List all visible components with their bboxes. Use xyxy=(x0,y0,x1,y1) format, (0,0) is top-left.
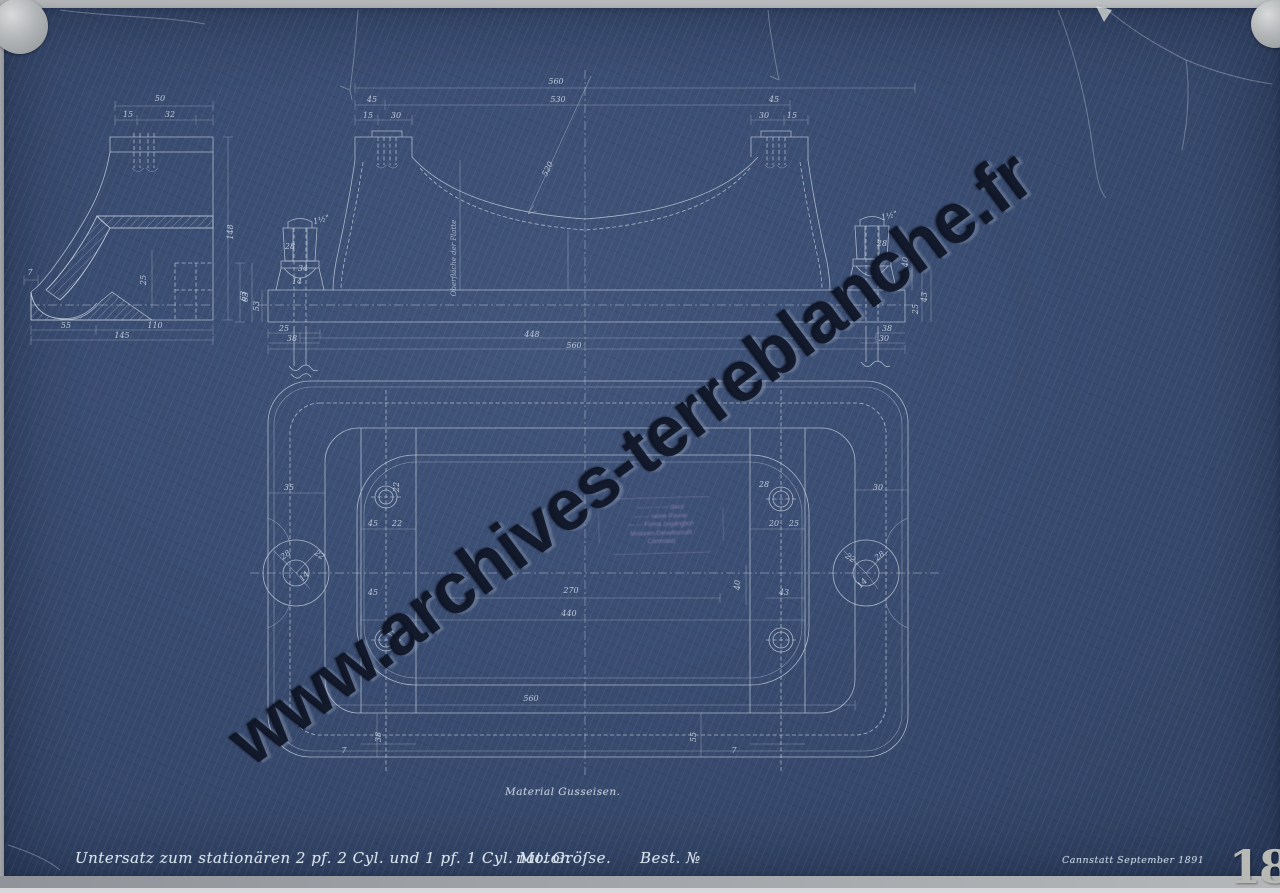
blueprint-photo: Oberfläche der Platte 501532148632575511… xyxy=(0,0,1280,893)
svg-text:30: 30 xyxy=(873,483,883,492)
plan-view xyxy=(250,381,940,772)
material-caption: Material Gusseisen. xyxy=(505,786,620,798)
svg-text:1½": 1½" xyxy=(312,213,330,226)
dimension-labels: 5015321486325755110145560530454515303015… xyxy=(27,77,929,755)
svg-text:22: 22 xyxy=(392,482,401,493)
svg-text:25: 25 xyxy=(788,519,799,528)
svg-text:40: 40 xyxy=(733,580,742,591)
svg-text:560: 560 xyxy=(566,341,581,350)
page-number: 18 xyxy=(1229,840,1280,893)
svg-text:55: 55 xyxy=(61,321,71,330)
svg-text:38: 38 xyxy=(882,324,892,333)
order-number-caption: Best. № xyxy=(640,849,701,867)
svg-text:40: 40 xyxy=(901,257,910,268)
svg-text:15: 15 xyxy=(123,110,133,119)
svg-text:22: 22 xyxy=(391,519,402,528)
svg-text:1½": 1½" xyxy=(880,209,898,222)
svg-text:15: 15 xyxy=(787,111,797,120)
svg-text:30: 30 xyxy=(391,111,401,120)
svg-text:560: 560 xyxy=(548,77,563,86)
svg-text:43: 43 xyxy=(778,588,789,597)
svg-text:45: 45 xyxy=(367,588,378,597)
svg-text:270: 270 xyxy=(562,586,578,595)
svg-text:22: 22 xyxy=(312,548,326,562)
svg-text:63: 63 xyxy=(241,292,250,302)
svg-text:45: 45 xyxy=(366,95,377,104)
svg-text:32: 32 xyxy=(165,110,175,119)
svg-text:20: 20 xyxy=(768,519,779,528)
svg-text:14: 14 xyxy=(292,277,302,286)
svg-text:28: 28 xyxy=(872,549,886,563)
svg-text:34: 34 xyxy=(298,264,308,273)
svg-text:38: 38 xyxy=(374,732,383,742)
svg-text:15: 15 xyxy=(363,111,373,120)
svg-text:35: 35 xyxy=(284,483,294,492)
svg-text:28: 28 xyxy=(284,242,295,251)
svg-text:38: 38 xyxy=(287,334,297,343)
svg-text:45: 45 xyxy=(367,519,378,528)
axis-note: Oberfläche der Platte xyxy=(450,220,458,296)
svg-text:30: 30 xyxy=(879,334,889,343)
stamp-text: — — — — dass— — seine Pause— — Firma zug… xyxy=(598,503,723,548)
drawing-linework: Oberfläche der Platte 501532148632575511… xyxy=(0,0,1280,893)
svg-text:55: 55 xyxy=(689,732,698,742)
svg-text:43: 43 xyxy=(920,292,929,303)
svg-text:28: 28 xyxy=(758,480,769,489)
svg-text:25: 25 xyxy=(139,275,148,286)
svg-text:448: 448 xyxy=(523,330,539,339)
title-caption: Untersatz zum stationären 2 pf. 2 Cyl. u… xyxy=(75,849,571,867)
svg-text:25: 25 xyxy=(911,304,920,315)
svg-text:530: 530 xyxy=(550,95,565,104)
svg-text:25: 25 xyxy=(278,324,289,333)
svg-text:520: 520 xyxy=(540,160,555,178)
svg-text:145: 145 xyxy=(114,331,129,340)
stamp: — — — — dass— — seine Pause— — Firma zug… xyxy=(597,495,724,555)
svg-text:45: 45 xyxy=(768,95,779,104)
svg-text:7: 7 xyxy=(341,746,347,755)
svg-text:7: 7 xyxy=(27,268,33,277)
place-date-caption: Cannstatt September 1891 xyxy=(1062,855,1204,866)
svg-text:148: 148 xyxy=(226,224,235,239)
svg-text:14: 14 xyxy=(855,576,869,590)
svg-text:30: 30 xyxy=(759,111,769,120)
front-elevation-view xyxy=(252,70,931,775)
svg-text:560: 560 xyxy=(523,694,538,703)
svg-text:440: 440 xyxy=(560,609,576,618)
svg-text:50: 50 xyxy=(155,94,165,103)
svg-text:110: 110 xyxy=(147,321,162,330)
scale-caption: nat. Gröſse. xyxy=(516,849,611,867)
svg-text:28: 28 xyxy=(876,239,887,248)
side-section-view xyxy=(24,101,245,345)
svg-text:7: 7 xyxy=(731,746,737,755)
svg-text:53: 53 xyxy=(252,301,261,311)
paper-creases xyxy=(8,6,1272,870)
